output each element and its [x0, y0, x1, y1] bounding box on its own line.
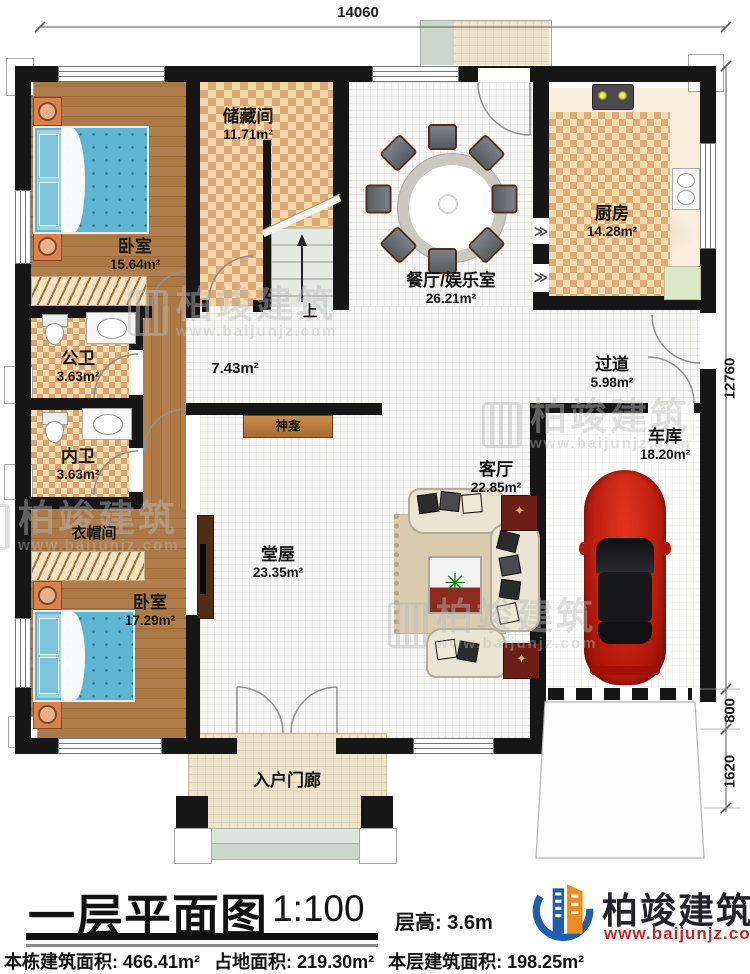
label-closet: 衣帽间 [44, 522, 144, 543]
label-hallway: 过道5.98m² [562, 356, 662, 390]
kitchen-door-mark-1: ≫ [533, 218, 549, 244]
coffee-table: ✳ [428, 556, 482, 614]
floor-height: 层高: 3.6m [395, 906, 493, 935]
label-kitchen: 厨房14.28m² [562, 205, 662, 239]
nightstand [33, 581, 62, 610]
title-underline-2 [26, 944, 378, 947]
dim-right-total: 12760 [722, 349, 739, 409]
car [584, 470, 666, 685]
back-porch-structure [420, 20, 552, 68]
toilet [42, 314, 66, 344]
label-bedroom-2: 卧室17.29m² [100, 594, 200, 628]
back-porch-floor [453, 21, 549, 65]
stat-floor: 本层建筑面积: 198.25m² [388, 952, 584, 972]
porch-pillar-right [361, 796, 393, 828]
plan-scale: 1:100 [272, 888, 365, 930]
shrine-cabinet: 神龛 [243, 415, 333, 438]
plant-icon: ✳ [444, 568, 466, 598]
side-table: ✦ [501, 495, 538, 531]
nightstand [33, 232, 62, 261]
dim-top: 14060 [308, 4, 408, 21]
label-public-bath: 公卫3.63m² [28, 350, 128, 384]
floor-plan-canvas: ≫ ≫ 神龛 [0, 0, 750, 974]
pillar-base-left [174, 828, 212, 864]
porch-pillar-left [176, 796, 208, 828]
back-porch-step [421, 21, 454, 65]
bathroom-sink [86, 312, 136, 344]
label-corridor-area: 7.43m² [185, 360, 285, 377]
label-stairs-up: 上 [296, 300, 324, 321]
side-table: ✦ [503, 643, 540, 679]
nightstand [33, 700, 62, 729]
label-porch: 入户门廊 [217, 772, 357, 791]
label-bedroom-1: 卧室15.64m² [85, 238, 185, 272]
shrine-label: 神龛 [275, 419, 300, 433]
pillar-base-right [359, 828, 397, 864]
kitchen-sink [672, 168, 700, 210]
staircase [271, 227, 334, 306]
nightstand [33, 97, 62, 126]
dim-right-bottom: 1620 [722, 747, 739, 797]
porch-step-2 [206, 843, 365, 860]
wardrobe [31, 276, 147, 306]
dining-chair [366, 185, 392, 214]
closet-rack [31, 551, 145, 581]
double-bed [33, 126, 149, 234]
label-living: 客厅22.85m² [446, 461, 546, 495]
brand-logo: 柏竣建筑 www.baijunjz.com [528, 876, 748, 952]
brand-url: www.baijunjz.com [604, 924, 750, 944]
toilet [42, 412, 66, 442]
kitchen-door-mark-2: ≫ [533, 264, 549, 292]
brand-logo-icon [528, 876, 600, 948]
dining-chair [428, 124, 457, 150]
garage-door [548, 688, 692, 700]
label-dining: 餐厅/娱乐室26.21m² [381, 272, 521, 306]
driveway [536, 702, 704, 858]
bathroom-sink [82, 408, 132, 440]
label-hall: 堂屋23.35m² [228, 546, 328, 580]
title-underline [26, 933, 378, 940]
kitchen-mat [664, 266, 701, 300]
dining-chair [492, 185, 518, 214]
watermark-logo-icon [0, 504, 10, 550]
label-garage: 车库18.20m² [615, 428, 715, 462]
stat-building-total: 本栋建筑面积: 466.41m² [4, 952, 200, 972]
dim-right-mid: 800 [722, 689, 739, 733]
label-storage: 储藏间11.71m² [198, 108, 298, 142]
stove [592, 84, 634, 110]
stat-land: 占地面积: 219.30m² [214, 952, 374, 972]
tv [200, 544, 206, 594]
area-stats: 本栋建筑面积: 466.41m²占地面积: 219.30m²本层建筑面积: 19… [4, 948, 598, 974]
label-private-bath: 内卫3.63m² [28, 448, 128, 482]
